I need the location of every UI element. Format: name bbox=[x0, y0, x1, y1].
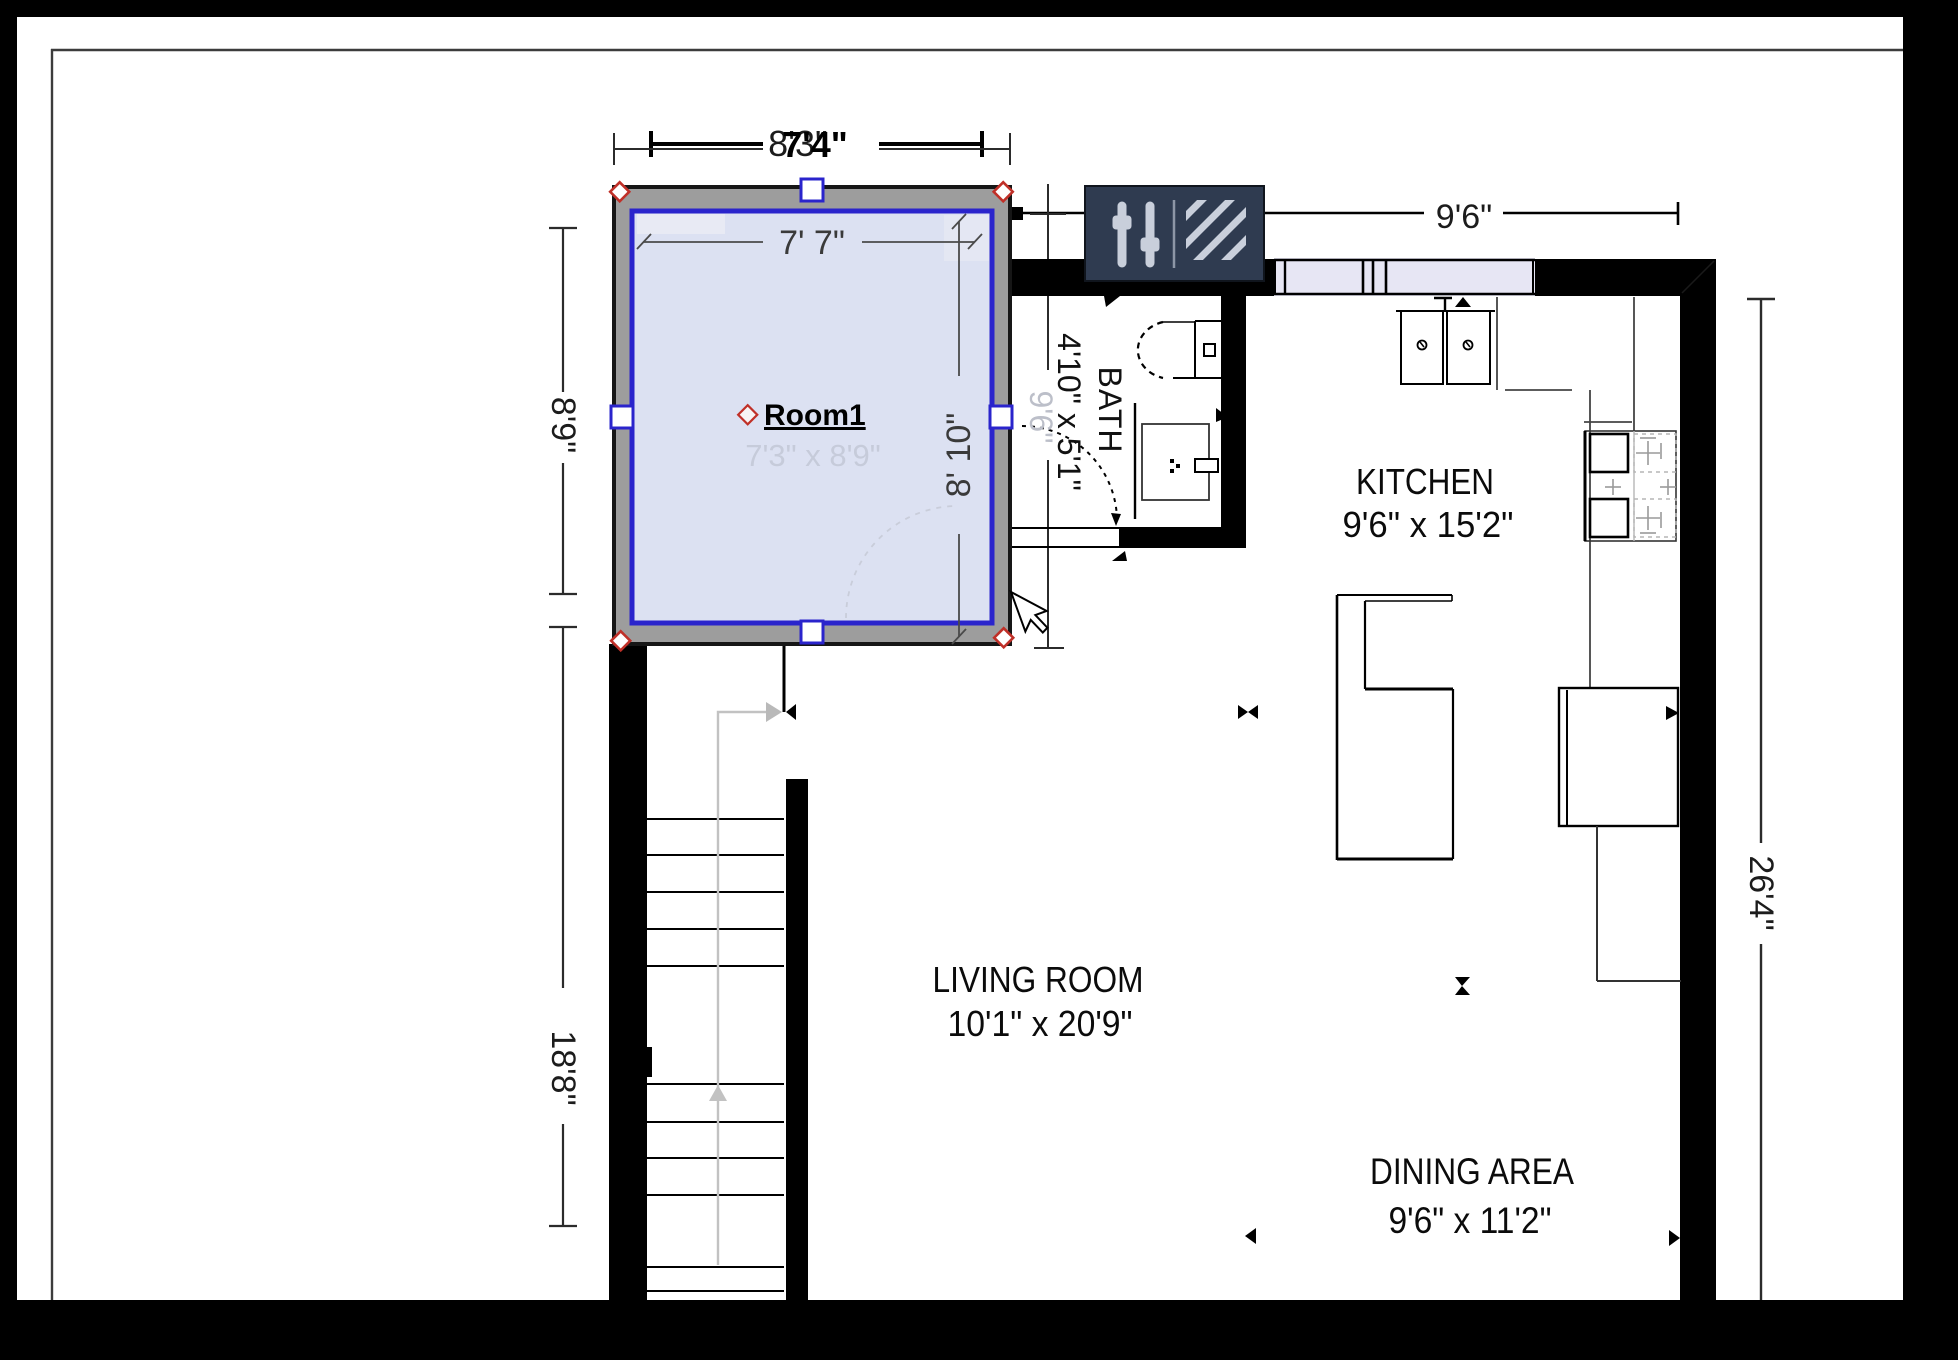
svg-text:DINING AREA: DINING AREA bbox=[1370, 1151, 1574, 1192]
svg-text:10'1" x 20'9": 10'1" x 20'9" bbox=[948, 1003, 1133, 1044]
svg-text:7' 7": 7' 7" bbox=[779, 224, 845, 262]
svg-text:9'6": 9'6" bbox=[1023, 390, 1059, 443]
svg-text:9'6" x 15'2": 9'6" x 15'2" bbox=[1343, 504, 1514, 545]
svg-text:7'3" x 8'9": 7'3" x 8'9" bbox=[745, 438, 881, 473]
svg-text:Room1: Room1 bbox=[764, 399, 866, 432]
svg-text:9'6" x 11'2": 9'6" x 11'2" bbox=[1389, 1200, 1552, 1241]
svg-text:7'4": 7'4" bbox=[782, 124, 848, 165]
svg-text:9'6": 9'6" bbox=[1436, 198, 1492, 236]
svg-text:BATH: BATH bbox=[1092, 367, 1128, 454]
svg-text:8'9": 8'9" bbox=[544, 397, 582, 453]
svg-text:KITCHEN: KITCHEN bbox=[1356, 461, 1494, 502]
svg-text:18'8": 18'8" bbox=[544, 1030, 582, 1105]
svg-text:8' 10": 8' 10" bbox=[940, 413, 978, 498]
svg-text:LIVING ROOM: LIVING ROOM bbox=[933, 959, 1144, 1000]
svg-text:26'4": 26'4" bbox=[1742, 855, 1780, 930]
